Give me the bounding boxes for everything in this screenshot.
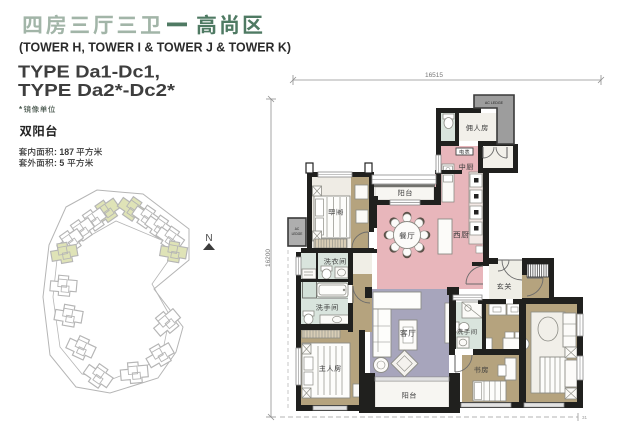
svg-text:TYPE Da1-Dc1,: TYPE Da1-Dc1, [18,62,160,82]
svg-text:: 5: : 5 [54,158,64,168]
svg-text:16200: 16200 [265,249,272,267]
svg-text:AC LEDGE: AC LEDGE [485,101,504,105]
svg-text:TYPE Da2*-Dc2*: TYPE Da2*-Dc2* [18,80,175,100]
svg-text:N: N [205,233,212,244]
svg-text:16515: 16515 [425,72,443,79]
svg-text:AC: AC [295,227,300,231]
svg-text:31: 31 [582,415,588,420]
svg-text:LEDGE: LEDGE [292,232,303,236]
svg-text:: 187: : 187 [54,147,74,157]
svg-text:(TOWER H, TOWER I & TOWER J &: (TOWER H, TOWER I & TOWER J & TOWER K) [19,41,291,55]
